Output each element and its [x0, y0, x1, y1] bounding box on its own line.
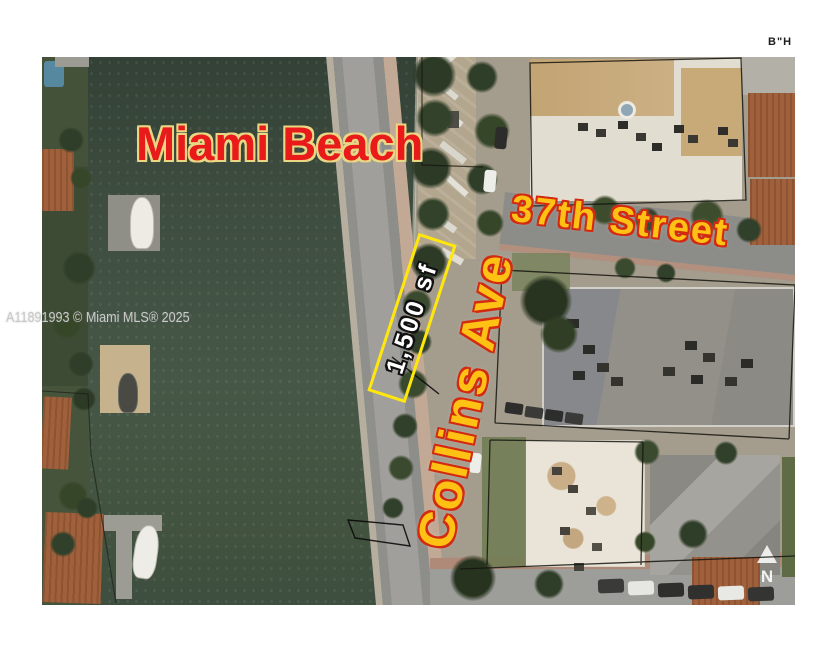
bh-inscription: B"H — [768, 36, 792, 48]
listing-page: B"H — [0, 0, 840, 649]
mls-watermark: A11891993 © Miami MLS® 2025 — [6, 309, 190, 326]
city-label: Miami Beach — [136, 116, 423, 171]
